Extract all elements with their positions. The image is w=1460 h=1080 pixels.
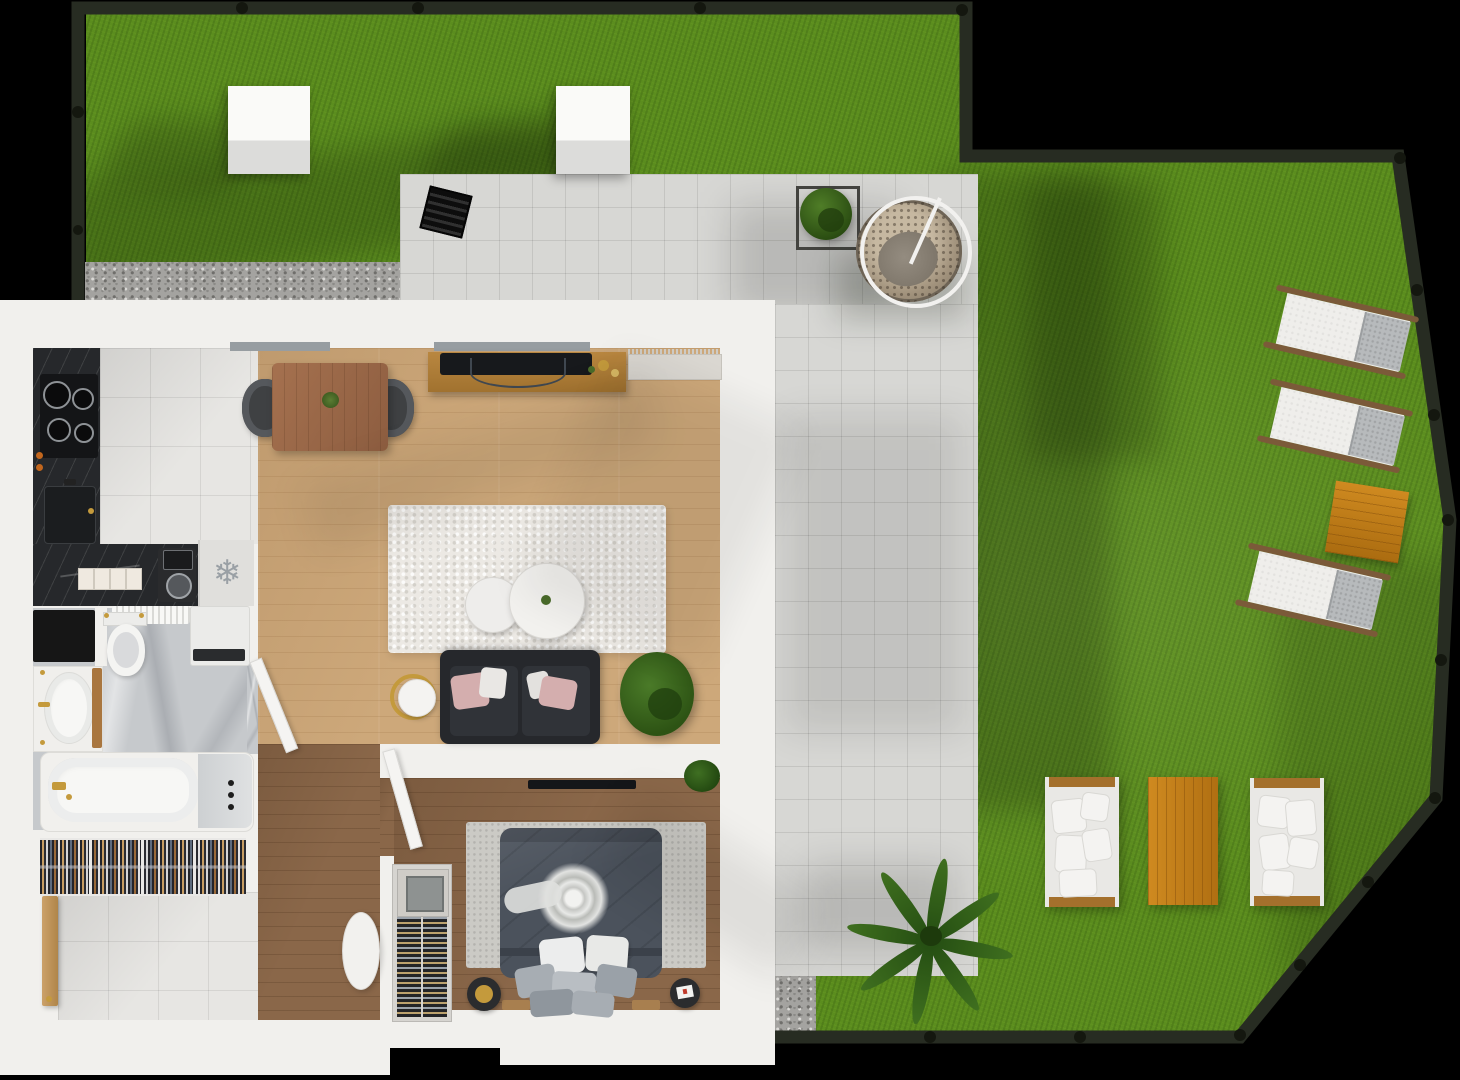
outdoor-sofa — [1250, 778, 1324, 906]
cabinet-appliance — [397, 869, 449, 917]
wine-cabinet — [392, 864, 452, 1022]
tv-stand-arc — [470, 358, 566, 388]
hallway-pouf — [342, 912, 380, 990]
tub-gold-knob — [66, 794, 72, 800]
skylight-cube — [556, 86, 630, 174]
sofa-pillow — [1261, 869, 1295, 897]
rack-divider — [421, 917, 423, 1017]
living-plant-dark — [648, 688, 682, 720]
lounger-headrest — [1354, 312, 1411, 371]
gold-button — [139, 613, 144, 618]
shower-section — [198, 754, 252, 828]
fridge-freezer: ❄ — [198, 540, 254, 606]
gold-hook — [40, 740, 45, 745]
book-mark — [683, 989, 688, 995]
bedroom-plant — [684, 760, 720, 792]
wardrobe-divider — [193, 840, 196, 894]
sofa-pillow — [1286, 836, 1321, 871]
sofa-pillow — [1081, 827, 1114, 863]
sofa-pillow — [1079, 791, 1111, 823]
coffee-machine — [158, 548, 196, 602]
washer-panel — [193, 649, 245, 661]
pink-pillow — [538, 675, 579, 711]
toilet-seat — [113, 632, 139, 668]
table-plant — [322, 392, 339, 408]
sofa-wood-arm — [1049, 777, 1115, 787]
window-sill — [434, 342, 590, 351]
living-sofa — [440, 650, 600, 744]
lounger-headrest — [1326, 570, 1383, 629]
palm-center — [920, 926, 942, 946]
wine-rack — [397, 917, 447, 1017]
gold-fitting — [88, 508, 94, 514]
sofa-pillow — [1058, 868, 1097, 898]
vanity-sink — [44, 672, 94, 744]
bedroom-doorway — [380, 778, 394, 856]
green-vase — [588, 366, 595, 373]
nightstand-stool-right — [670, 978, 700, 1008]
shower-control — [228, 780, 234, 786]
hallway-floor — [58, 892, 258, 1020]
cutting-board — [94, 568, 110, 590]
gold-button — [104, 613, 109, 618]
dark-mat — [33, 610, 95, 662]
coffee-machine-top — [163, 550, 193, 570]
shower-control — [228, 792, 234, 798]
open-wardrobe — [40, 838, 246, 896]
counter-knob — [36, 452, 43, 459]
sink-gold-faucet — [38, 702, 50, 707]
white-pillow — [479, 667, 508, 700]
wood-bath-mat — [92, 668, 102, 748]
entrance-door — [42, 896, 58, 1006]
sofa-wood-arm — [1254, 896, 1320, 906]
snowflake-icon: ❄ — [213, 556, 242, 590]
grey-pillow — [571, 990, 615, 1018]
square-side-table — [1325, 481, 1409, 564]
outdoor-coffee-table — [1148, 777, 1218, 905]
counter-knob — [36, 464, 43, 471]
round-side-table — [398, 679, 436, 717]
skylight-cube — [228, 86, 310, 174]
sofa-pillow — [1284, 799, 1317, 837]
window-sill — [230, 342, 330, 351]
gold-vase — [598, 360, 609, 371]
burner — [74, 423, 94, 443]
induction-hob — [40, 374, 98, 458]
bed-frame-corner — [502, 1000, 530, 1010]
floor-plan-scene: ❄ — [0, 0, 1460, 1080]
sofa-wood-arm — [1254, 778, 1320, 788]
palm-plant — [884, 896, 976, 988]
door-handle — [46, 996, 52, 1002]
bed-frame-corner — [632, 1000, 660, 1010]
wardrobe-divider — [89, 840, 92, 894]
appliance-screen — [406, 876, 444, 912]
sink-faucet — [64, 479, 76, 485]
outdoor-sofa — [1045, 777, 1119, 907]
cutting-board — [126, 568, 142, 590]
tub-gold-faucet — [52, 782, 66, 790]
shower-control — [228, 804, 234, 810]
coffee-machine-tray — [166, 573, 192, 599]
cutting-board — [110, 568, 126, 590]
sofa-wood-arm — [1049, 897, 1115, 907]
kitchen-floor — [100, 348, 258, 544]
burner — [43, 381, 71, 409]
wardrobe-divider — [141, 840, 144, 894]
grey-pillow — [529, 988, 575, 1017]
nightstand-stool-left — [467, 977, 501, 1011]
lounger-headrest — [1348, 406, 1405, 465]
kitchen-sink — [44, 486, 96, 544]
bedroom-wall-tv — [528, 780, 636, 789]
gold-tray — [475, 985, 493, 1003]
burner — [47, 418, 71, 442]
cutting-board — [78, 568, 94, 590]
gold-hook — [40, 670, 45, 675]
washing-machine — [190, 606, 250, 666]
burner — [72, 388, 94, 410]
toilet-bowl — [107, 624, 145, 676]
bathtub — [48, 758, 198, 822]
planter-bush-dark — [818, 208, 844, 232]
